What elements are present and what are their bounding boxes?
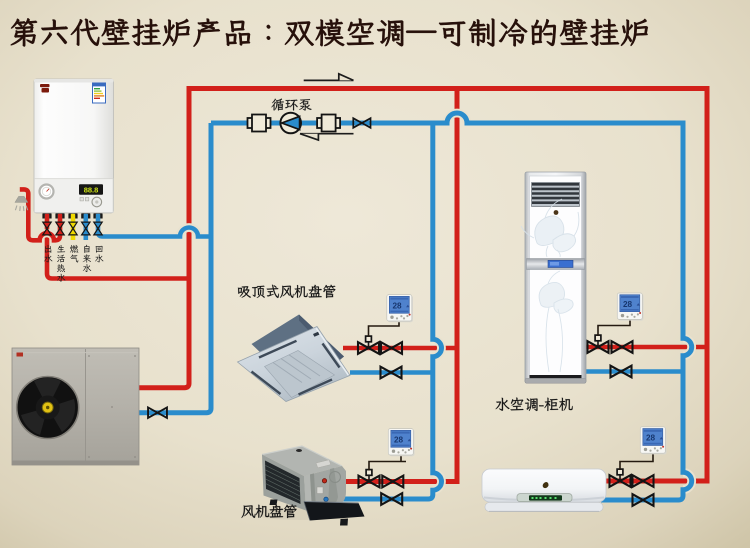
- svg-text:88.8: 88.8: [84, 186, 99, 195]
